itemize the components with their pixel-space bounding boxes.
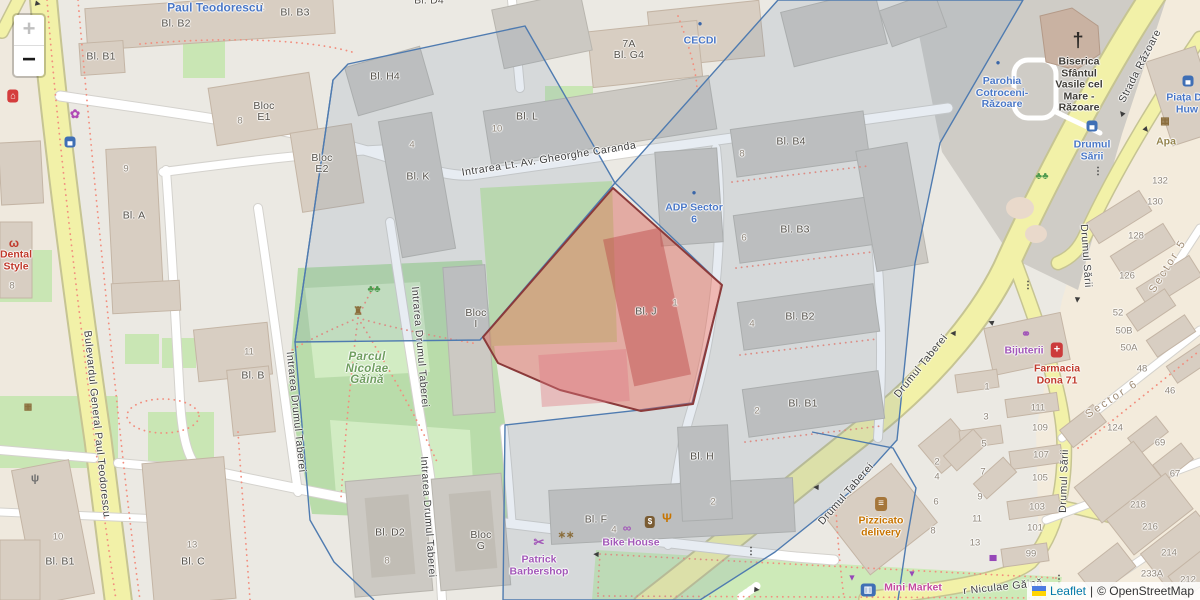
house-number: 6	[741, 233, 746, 244]
shop-icon: ⌂	[7, 90, 18, 103]
house-number: 10	[53, 532, 64, 543]
waste-basket-icon: ▦	[1160, 117, 1169, 127]
building-label: Bl. B2	[161, 19, 190, 30]
poi-parohia-cotroceni-razoare-label: Parohia Cotroceni- Răzoare	[976, 76, 1029, 111]
poi-bijuterii-label: Bijuterii	[1004, 345, 1043, 357]
house-number: 9	[123, 164, 128, 175]
house-number: 103	[1029, 502, 1045, 513]
house-number: 50A	[1121, 343, 1138, 354]
traffic-light-icon: ⋮	[746, 547, 756, 557]
house-number: 4	[934, 472, 939, 483]
ring-icon: ⚭	[1021, 328, 1031, 340]
zoom-out-button[interactable]: −	[14, 46, 44, 76]
building-label: Bl. D2	[375, 528, 405, 539]
waste-basket-icon: ▦	[24, 403, 33, 412]
house-number: 11	[972, 514, 982, 525]
house-number: 1	[672, 298, 677, 309]
house-number: 99	[1026, 549, 1037, 560]
oneway-arrow-icon: ▶	[1073, 297, 1080, 303]
house-number: 10	[492, 124, 503, 135]
place-sector-6: Sector 6	[1083, 377, 1141, 420]
map-view: Bulevardul General Paul TeodorescuIntrar…	[0, 0, 1200, 600]
street-strada-razoare: Strada Răzoare	[1116, 27, 1163, 104]
street-intrarea-lt-av-gheorghe-caranda: Intrarea Lt. Av. Gheorghe Caranda	[461, 139, 637, 178]
house-number: 2	[934, 457, 939, 468]
building-label: Bl. H	[690, 452, 714, 463]
building-label: Bl. B1	[45, 557, 74, 568]
bus-stop-icon: ▄	[1183, 76, 1194, 87]
basket-icon: ▼	[908, 570, 917, 579]
oneway-arrow-icon: ▶	[987, 318, 995, 327]
house-number: 9	[977, 492, 982, 503]
building-label: Bl. L	[516, 112, 538, 123]
poi-apa-label: Apa	[1156, 136, 1176, 148]
ukraine-flag-icon	[1032, 586, 1046, 596]
bicycle-icon: ∞	[623, 522, 632, 534]
street-intrarea-drumul-taberei-2: Intrarea Drumul Taberei	[409, 286, 432, 408]
poi-dental-style-label: Dental Style	[0, 250, 32, 273]
building-label: Bl. D4	[414, 0, 444, 7]
house-number: 52	[1113, 308, 1124, 319]
house-number: 4	[409, 140, 414, 151]
house-number: 107	[1033, 450, 1049, 461]
house-number: 13	[970, 538, 981, 549]
house-number: 8	[930, 526, 935, 537]
poi-paul-teodorescu-label: Paul Teodorescu	[167, 2, 263, 14]
place-sector-5: Sector 5	[1147, 237, 1189, 295]
tooth-icon: ω	[9, 237, 19, 249]
house-number: 2	[754, 406, 759, 417]
house-number: 3	[983, 412, 988, 423]
label-layer: Bulevardul General Paul TeodorescuIntrar…	[0, 0, 1200, 600]
house-number: 105	[1032, 473, 1048, 484]
house-number: 101	[1027, 523, 1043, 534]
poi-drumul-sarii-stop-label: Drumul Sării	[1074, 140, 1111, 163]
house-number: 124	[1107, 423, 1123, 434]
people-icon: ∗∗	[558, 531, 575, 541]
poi-farmacia-dona-71-label: Farmacia Dona 71	[1034, 364, 1080, 387]
traffic-light-icon: ⋮	[1093, 167, 1103, 177]
building-label: Bl. H4	[370, 72, 400, 83]
house-number: 126	[1119, 271, 1135, 282]
bus-stop-icon: ▄	[1087, 121, 1098, 132]
fast-food-icon: ≡	[875, 497, 887, 511]
basket-icon: ▼	[848, 574, 857, 583]
house-number: 4	[611, 525, 616, 536]
house-number: 69	[1155, 438, 1166, 449]
church-cross-icon: †	[1072, 31, 1083, 51]
building-label: Bl. B2	[785, 312, 814, 323]
street-drumul-sarii-2: Drumul Sării	[1057, 449, 1071, 513]
oneway-arrow-icon: ▶	[593, 550, 599, 557]
building-label: Bloc E1	[253, 101, 274, 123]
house-number: 130	[1147, 197, 1163, 208]
house-number: 1	[984, 382, 989, 393]
building-label: Bl. B3	[280, 8, 309, 19]
oneway-arrow-icon: ▶	[813, 483, 819, 490]
building-label: Bl. B1	[86, 52, 115, 63]
scissors-icon: ✂	[534, 536, 545, 549]
building-label: Bl. B4	[776, 137, 805, 148]
building-label: Bloc G	[470, 530, 491, 552]
house-number: 109	[1032, 423, 1048, 434]
house-number: 214	[1161, 548, 1177, 559]
house-number: 2	[710, 497, 715, 508]
traffic-light-icon: ⋮	[1023, 281, 1033, 291]
street-bulevardul-general-paul-teodorescu: Bulevardul General Paul Teodorescu	[81, 330, 113, 518]
building-label: Bl. B1	[788, 399, 817, 410]
poi-dot-icon: ●	[996, 59, 1001, 67]
poi-biserica-sfantul-vasile-label: Biserica Sfântul Vasile cel Mare - Răzoa…	[1055, 56, 1102, 114]
building-label: Bl. J	[635, 307, 656, 318]
poi-bike-house-label: Bike House	[602, 537, 659, 549]
attribution-separator: |	[1090, 584, 1093, 598]
poi-dot-icon: ●	[698, 20, 703, 28]
poi-parcul-nicolae-gaina-label: Parcul Nicolae Găină	[345, 352, 388, 387]
car-wash-icon: ▄	[989, 551, 996, 561]
pharmacy-cross-icon: +	[1051, 343, 1063, 358]
restaurant-icon: Ψ	[662, 512, 672, 524]
street-intrarea-drumul-taberei-1: Intrarea Drumul Taberei	[284, 351, 309, 473]
leaflet-link[interactable]: Leaflet	[1050, 584, 1086, 598]
bus-stop-icon: ▄	[65, 137, 76, 148]
building-label: Bl. A	[123, 211, 146, 222]
poi-piata-label: Piața Da Huw	[1166, 93, 1200, 116]
oneway-arrow-icon: ▶	[35, 0, 42, 8]
house-number: 11	[244, 347, 254, 358]
house-number: 233A	[1141, 569, 1163, 580]
building-label: Bl. F	[585, 515, 608, 526]
osm-link[interactable]: © OpenStreetMap	[1097, 584, 1194, 598]
atm-icon: $	[645, 516, 655, 528]
house-number: 128	[1128, 231, 1144, 242]
zoom-in-button[interactable]: +	[14, 15, 44, 46]
house-number: 5	[981, 439, 986, 450]
poi-cecdi-label: CECDI	[684, 35, 717, 47]
attribution-bar: Leaflet | © OpenStreetMap	[1027, 582, 1200, 600]
house-number: 50B	[1116, 326, 1133, 337]
street-drumul-sarii-1: Drumul Sării	[1078, 224, 1094, 288]
street-intrarea-drumul-taberei-3: Intrarea Drumul Taberei	[418, 456, 438, 578]
house-number: 48	[1137, 364, 1148, 375]
florist-icon: ✿	[70, 108, 80, 120]
building-label: Bl. K	[406, 172, 429, 183]
house-number: 67	[1170, 469, 1181, 480]
house-number: 111	[1031, 403, 1045, 414]
house-number: 8	[9, 281, 14, 292]
house-number: 216	[1142, 522, 1158, 533]
oneway-arrow-icon: ▶	[1118, 109, 1127, 118]
poi-dot-icon: ●	[692, 189, 697, 197]
building-label: Bl. B	[241, 371, 264, 382]
street-drumul-taberei-1: Drumul Taberei	[892, 332, 950, 400]
poi-adp-sector-6-label: ADP Sector 6	[665, 203, 723, 226]
house-number: 7	[980, 467, 985, 478]
poi-mini-market-label: Mini Market	[884, 582, 942, 594]
antenna-icon: ψ	[31, 474, 39, 485]
oneway-arrow-icon: ▶	[1142, 126, 1151, 135]
poi-patrick-barbershop-label: Patrick Barbershop	[510, 555, 569, 578]
building-label: 7A Bl. G4	[614, 39, 644, 61]
monument-icon: ♜	[353, 307, 363, 318]
trees-icon: ♣♣	[367, 285, 380, 295]
house-number: 132	[1152, 176, 1168, 187]
house-number: 218	[1130, 500, 1146, 511]
building-label: Bl. B3	[780, 225, 809, 236]
house-number: 13	[187, 540, 198, 551]
poi-pizzicato-delivery-label: Pizzicato delivery	[859, 516, 904, 539]
building-label: Bloc E2	[311, 153, 332, 175]
house-number: 46	[1165, 386, 1176, 397]
map-canvas[interactable]: Bulevardul General Paul TeodorescuIntrar…	[0, 0, 1200, 600]
oneway-arrow-icon: ▶	[950, 329, 956, 336]
house-number: 8	[739, 149, 744, 160]
house-number: 4	[749, 319, 754, 330]
building-label: Bloc I	[465, 308, 486, 330]
house-number: 8	[237, 116, 242, 127]
oneway-arrow-icon: ▶	[754, 586, 760, 593]
trees-icon: ♣♣	[1035, 172, 1048, 182]
house-number: 8	[384, 556, 389, 567]
convenience-icon: ▥	[861, 584, 876, 597]
building-label: Bl. C	[181, 557, 205, 568]
house-number: 6	[933, 497, 938, 508]
zoom-control: + −	[12, 13, 46, 78]
